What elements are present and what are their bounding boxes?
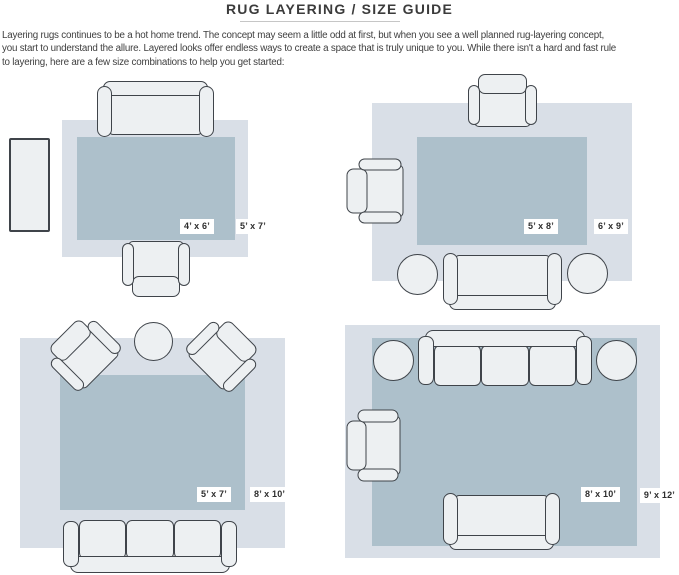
intro-line-1: Layering rugs continues to be a hot home… <box>2 29 678 42</box>
three-seat-sofa <box>418 330 592 388</box>
seat-cushion <box>109 91 203 136</box>
armchair <box>468 74 537 128</box>
backrest <box>103 81 208 96</box>
intro-line-2: you start to understand the allure. Laye… <box>2 42 678 55</box>
top-rug <box>417 137 587 245</box>
bottom-rug-size-label: 6’ x 9’ <box>594 219 628 234</box>
seat-cushion <box>126 520 174 560</box>
backrest <box>449 535 554 550</box>
top-rug-size-label: 8’ x 10’ <box>581 487 620 502</box>
armrest-right <box>358 159 402 171</box>
backrest <box>132 276 180 297</box>
three-seat-sofa <box>63 518 237 573</box>
intro-paragraph: Layering rugs continues to be a hot home… <box>2 29 678 69</box>
armrest-left <box>97 86 112 137</box>
backrest <box>347 420 367 470</box>
armrest-left <box>547 253 562 305</box>
armchair <box>347 159 405 224</box>
rug-size-guide: RUG LAYERING / SIZE GUIDE Layering rugs … <box>0 0 679 575</box>
bottom-rug-size-label: 9’ x 12’ <box>640 488 679 503</box>
armchair <box>347 410 402 482</box>
armrest-right <box>443 493 458 545</box>
sofa <box>97 81 214 137</box>
ottoman <box>373 340 414 381</box>
page-title: RUG LAYERING / SIZE GUIDE <box>0 1 679 17</box>
armrest-right <box>63 521 79 567</box>
armrest-left <box>178 243 190 286</box>
seat-cushion <box>434 345 482 387</box>
bottom-rug-size-label: 8’ x 10’ <box>250 487 289 502</box>
armrest-right <box>525 85 537 126</box>
top-rug-size-label: 5’ x 7’ <box>197 487 231 502</box>
armrest-left <box>545 493 560 545</box>
seat-cushion <box>455 495 549 541</box>
backrest <box>70 557 230 574</box>
seat-cushion <box>79 520 127 560</box>
armrest-left <box>358 469 399 482</box>
backrest <box>449 295 556 310</box>
armrest-right <box>199 86 214 137</box>
round-table <box>134 322 173 361</box>
seat-cushion <box>529 345 577 387</box>
backrest <box>425 330 585 347</box>
loveseat <box>443 493 560 550</box>
armrest-left <box>468 85 480 126</box>
armrest-right <box>576 336 592 384</box>
armrest-left <box>358 212 402 224</box>
top-rug-size-label: 5’ x 8’ <box>524 219 558 234</box>
armrest-right <box>122 243 134 286</box>
backrest <box>347 168 368 214</box>
armchair <box>122 240 190 297</box>
bottom-rug-size-label: 5’ x 7’ <box>236 219 270 234</box>
armrest-right <box>443 253 458 305</box>
seat-cushion <box>455 255 550 301</box>
ottoman <box>596 340 637 381</box>
sofa <box>443 253 562 310</box>
backrest <box>478 74 526 94</box>
ottoman <box>397 254 438 295</box>
intro-line-3: to layering, here are a few size combina… <box>2 56 678 69</box>
ottoman <box>567 253 608 294</box>
armrest-left <box>418 336 434 384</box>
seat-cushion <box>481 345 529 387</box>
armrest-right <box>358 410 399 423</box>
top-rug-size-label: 4’ x 6’ <box>180 219 214 234</box>
console-table <box>9 138 50 232</box>
armrest-left <box>221 521 237 567</box>
seat-cushion <box>174 520 222 560</box>
title-divider <box>240 21 400 22</box>
